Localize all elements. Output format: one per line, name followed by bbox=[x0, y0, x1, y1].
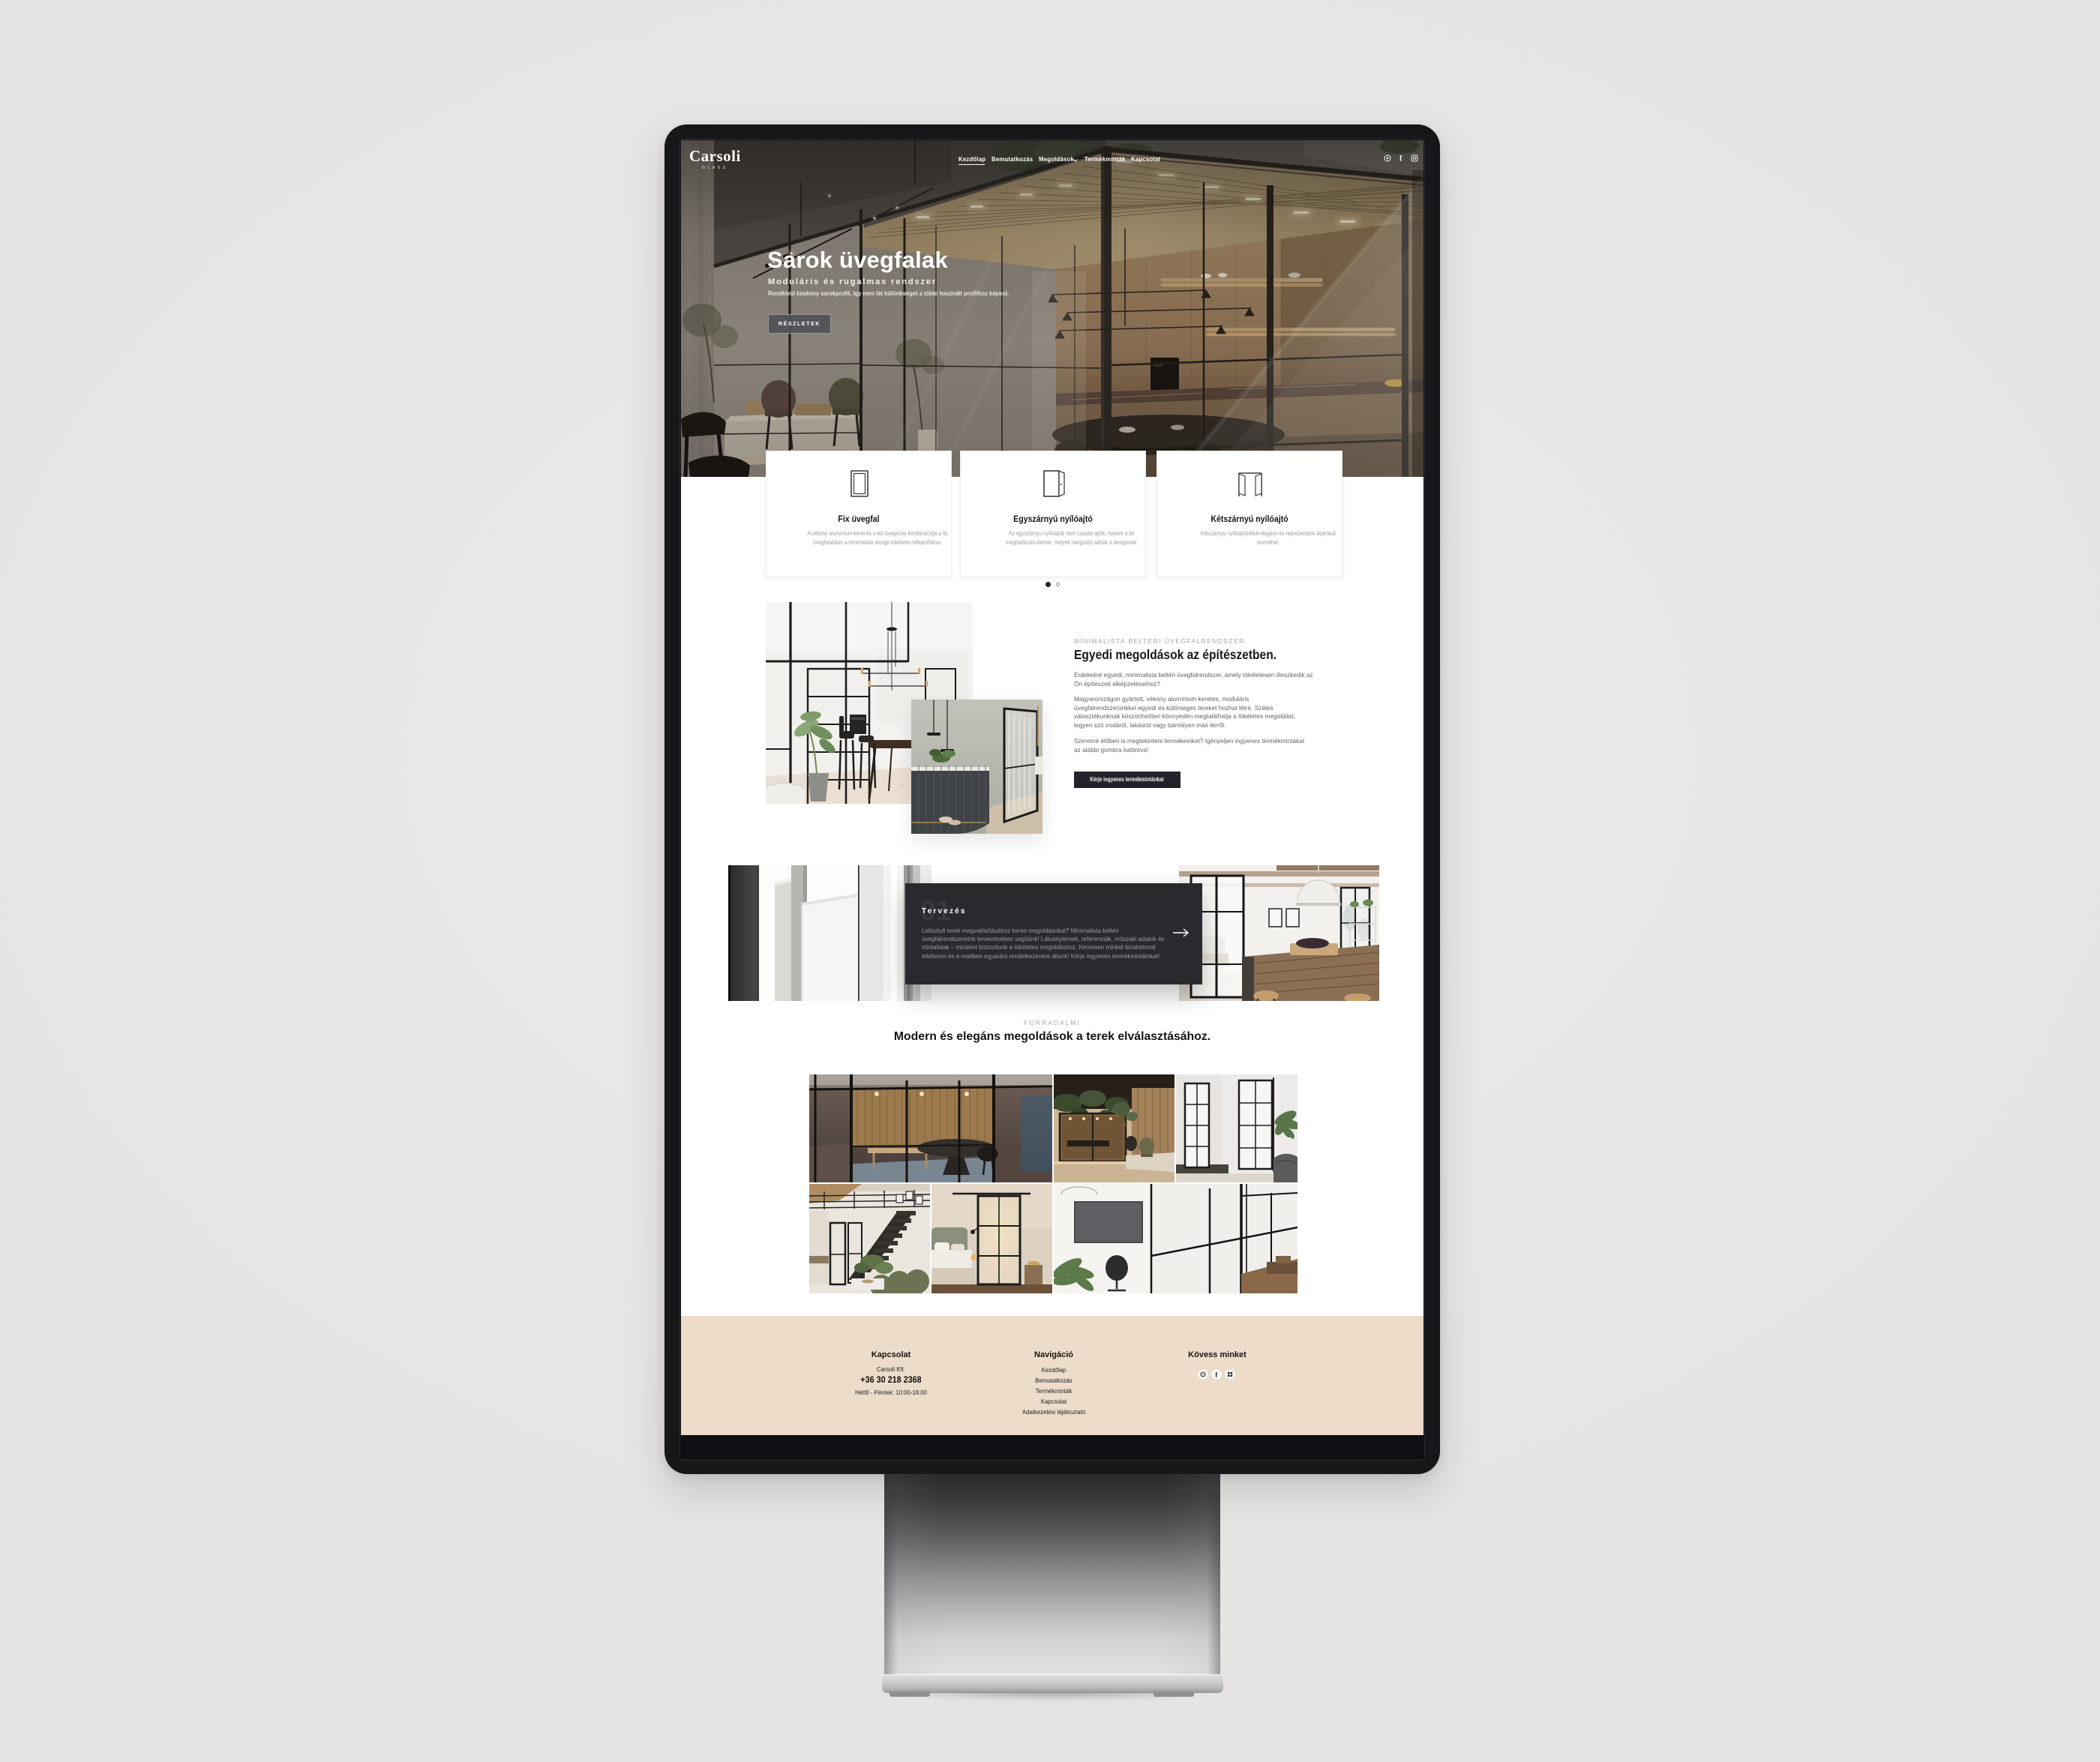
svg-text:f: f bbox=[1399, 155, 1402, 163]
